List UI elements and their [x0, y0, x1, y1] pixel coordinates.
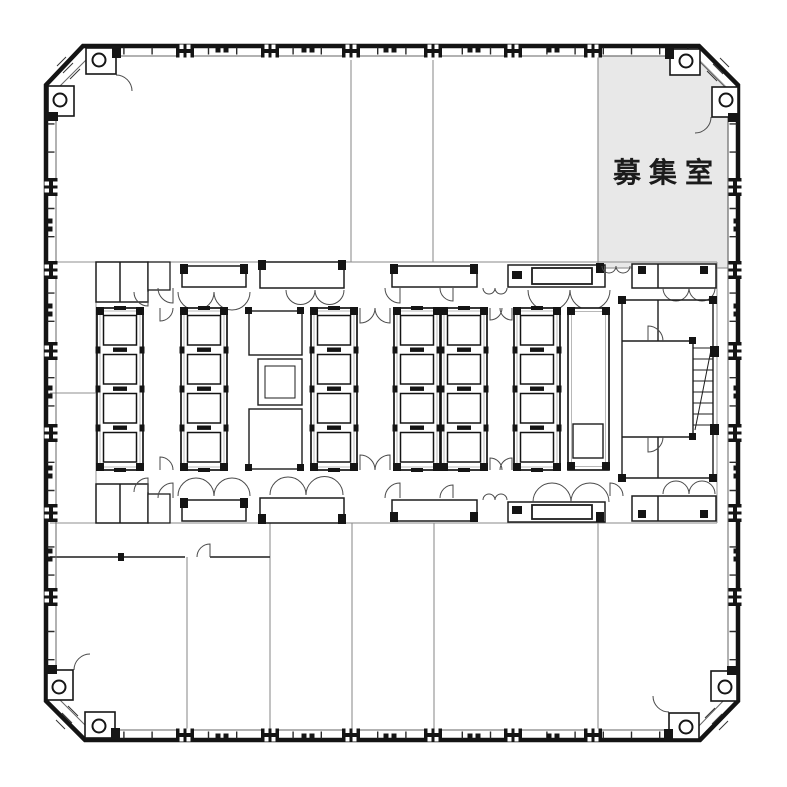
- available-room-highlight: 募集室: [598, 56, 728, 268]
- floor-plan-page: 募集室: [0, 0, 787, 787]
- elevator-bank: [310, 306, 359, 472]
- elevator-bank: [96, 306, 145, 472]
- available-room-label: 募集室: [612, 156, 721, 189]
- floor-plan: 募集室: [0, 0, 787, 787]
- elevator-bank: [513, 306, 562, 472]
- core-ahu-shaft: [567, 307, 610, 470]
- elevator-bank: [440, 306, 489, 472]
- elevator-bank: [393, 306, 442, 472]
- elevator-bank: [180, 306, 229, 472]
